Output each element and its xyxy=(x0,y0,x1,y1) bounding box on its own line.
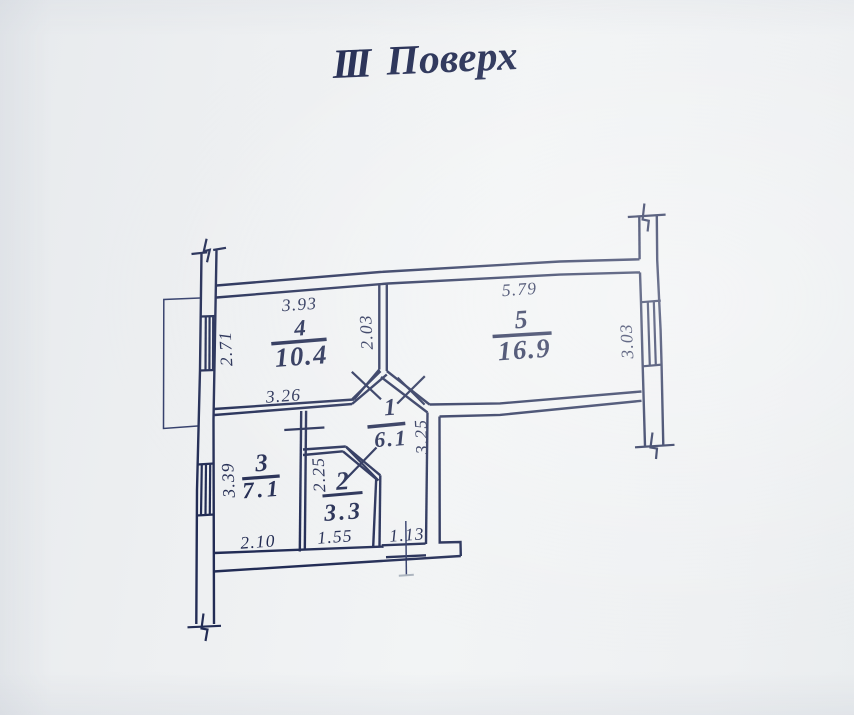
svg-text:6.1: 6.1 xyxy=(373,425,408,452)
svg-text:3.93: 3.93 xyxy=(280,293,318,315)
svg-text:Поверх: Поверх xyxy=(384,32,518,84)
svg-text:1.55: 1.55 xyxy=(317,525,354,547)
svg-text:2.03: 2.03 xyxy=(355,314,377,350)
svg-text:5.79: 5.79 xyxy=(501,278,538,300)
svg-text:2: 2 xyxy=(334,466,350,496)
svg-text:7.1: 7.1 xyxy=(242,476,283,504)
svg-text:3.03: 3.03 xyxy=(616,323,638,360)
svg-text:3.39: 3.39 xyxy=(217,462,239,499)
svg-text:2.71: 2.71 xyxy=(215,330,237,366)
svg-text:1: 1 xyxy=(383,395,397,422)
svg-text:3.25: 3.25 xyxy=(410,418,432,455)
svg-text:16.9: 16.9 xyxy=(497,333,552,367)
svg-text:III: III xyxy=(330,39,374,87)
svg-text:2.10: 2.10 xyxy=(240,530,277,552)
svg-text:3.26: 3.26 xyxy=(264,384,302,406)
svg-text:1.13: 1.13 xyxy=(389,523,426,545)
svg-text:3: 3 xyxy=(253,450,268,478)
svg-text:2.25: 2.25 xyxy=(308,456,330,492)
svg-text:5: 5 xyxy=(513,305,528,335)
svg-text:4: 4 xyxy=(292,315,306,341)
svg-text:10.4: 10.4 xyxy=(274,339,329,373)
svg-text:3.3: 3.3 xyxy=(322,498,364,527)
